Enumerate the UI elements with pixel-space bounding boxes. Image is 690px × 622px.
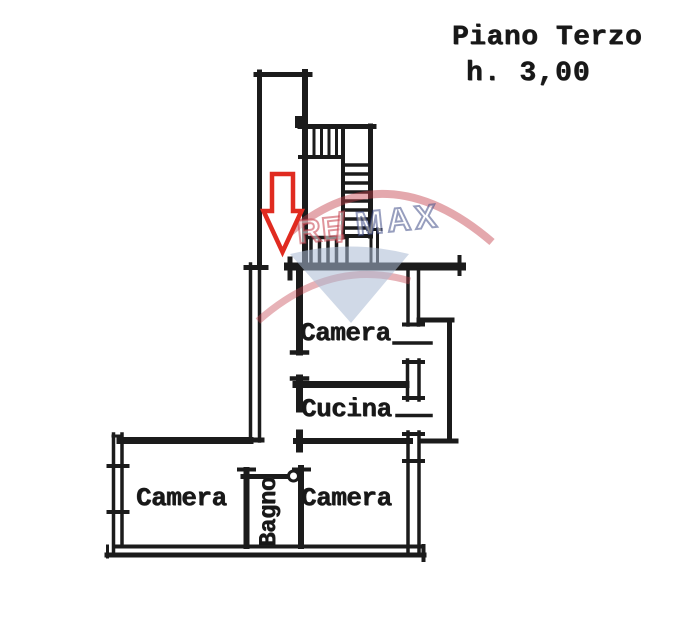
bottom-exterior-wall [107,546,424,560]
floorplan-scan: Piano Terzo h. 3,00 Camera Cucina Camera… [0,0,690,622]
window-left-wall [109,466,128,512]
room-label-cucina: Cucina [301,396,392,422]
room-label-camera-bottom-right: Camera [301,485,392,511]
staircase [300,126,381,262]
room-label-camera-middle: Camera [300,320,391,346]
ceiling-height-note: h. 3,00 [466,60,591,88]
floorplan-drawing [0,0,690,622]
page-title: Piano Terzo [452,24,642,52]
room-label-bagno: Bagno [258,477,284,547]
room-label-camera-bottom-left: Camera [136,485,227,511]
balcony-walls [419,320,456,441]
bagno-door-knob [289,471,299,481]
window-cucina [404,360,423,400]
